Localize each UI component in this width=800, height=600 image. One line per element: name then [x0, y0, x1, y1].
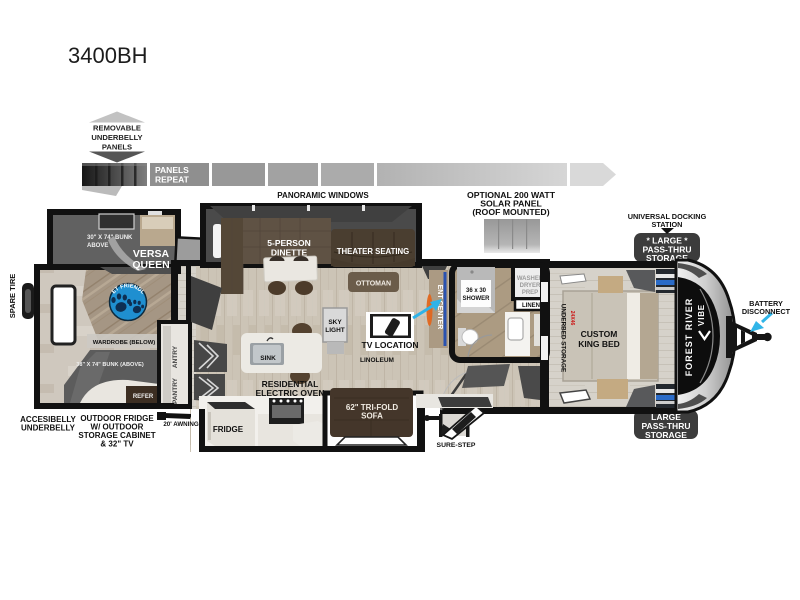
svg-text:PANELS: PANELS	[102, 143, 132, 152]
svg-text:ABOVE: ABOVE	[87, 243, 108, 249]
svg-text:PREP: PREP	[522, 290, 538, 296]
svg-text:STATION: STATION	[652, 220, 683, 229]
svg-text:REFER: REFER	[133, 394, 154, 400]
svg-text:ELECTRIC OVEN: ELECTRIC OVEN	[256, 388, 325, 398]
svg-text:REMOVABLE: REMOVABLE	[93, 124, 141, 133]
svg-text:LINOLEUM: LINOLEUM	[360, 357, 394, 364]
svg-text:ANTRY: ANTRY	[172, 345, 179, 368]
svg-text:VIBE: VIBE	[697, 304, 706, 326]
svg-text:SHOWER: SHOWER	[463, 296, 491, 302]
svg-text:FRIDGE: FRIDGE	[213, 425, 244, 434]
svg-text:PANTRY: PANTRY	[172, 377, 179, 404]
svg-text:SKY: SKY	[328, 319, 342, 326]
svg-text:UNDERBED STORAGE: UNDERBED STORAGE	[560, 304, 567, 372]
svg-text:UNDERBELLY: UNDERBELLY	[21, 424, 76, 433]
svg-text:CUSTOM: CUSTOM	[581, 329, 618, 339]
svg-text:20' AWNING: 20' AWNING	[163, 421, 198, 428]
svg-text:STORAGE: STORAGE	[645, 430, 687, 440]
svg-text:PANORAMIC WINDOWS: PANORAMIC WINDOWS	[277, 191, 369, 200]
svg-text:FOREST RIVER: FOREST RIVER	[684, 298, 694, 377]
svg-text:SOFA: SOFA	[361, 412, 383, 421]
svg-text:SINK: SINK	[260, 355, 276, 362]
svg-text:UNDERBELLY: UNDERBELLY	[91, 133, 142, 142]
svg-text:36 x 30: 36 x 30	[466, 288, 487, 294]
svg-text:REPEAT: REPEAT	[155, 175, 190, 185]
svg-text:PANELS: PANELS	[155, 165, 189, 175]
svg-text:KING BED: KING BED	[578, 339, 620, 349]
svg-text:& 32" TV: & 32" TV	[100, 440, 134, 449]
svg-text:38" X 74" BUNK (ABOVE): 38" X 74" BUNK (ABOVE)	[76, 362, 144, 368]
svg-text:WARDROBE (BELOW): WARDROBE (BELOW)	[93, 340, 156, 346]
svg-text:SURE-STEP: SURE-STEP	[437, 442, 476, 449]
svg-text:DISCONNECT: DISCONNECT	[742, 307, 791, 316]
svg-text:QUEEN: QUEEN	[132, 259, 169, 271]
svg-text:DINETTE: DINETTE	[271, 248, 308, 258]
svg-text:(ROOF MOUNTED): (ROOF MOUNTED)	[472, 207, 549, 217]
svg-text:LIGHT: LIGHT	[325, 327, 345, 334]
svg-text:5-PERSON: 5-PERSON	[267, 238, 310, 248]
svg-text:DRYER: DRYER	[520, 283, 541, 289]
svg-text:SPARE TIRE: SPARE TIRE	[8, 274, 17, 318]
svg-text:24X46: 24X46	[569, 311, 575, 326]
svg-text:THEATER SEATING: THEATER SEATING	[337, 247, 409, 256]
svg-text:TV LOCATION: TV LOCATION	[362, 340, 419, 350]
svg-text:WASHER: WASHER	[517, 276, 544, 282]
svg-text:LINEN: LINEN	[522, 303, 540, 309]
svg-text:OTTOMAN: OTTOMAN	[356, 281, 391, 288]
svg-text:3400BH: 3400BH	[68, 43, 148, 68]
